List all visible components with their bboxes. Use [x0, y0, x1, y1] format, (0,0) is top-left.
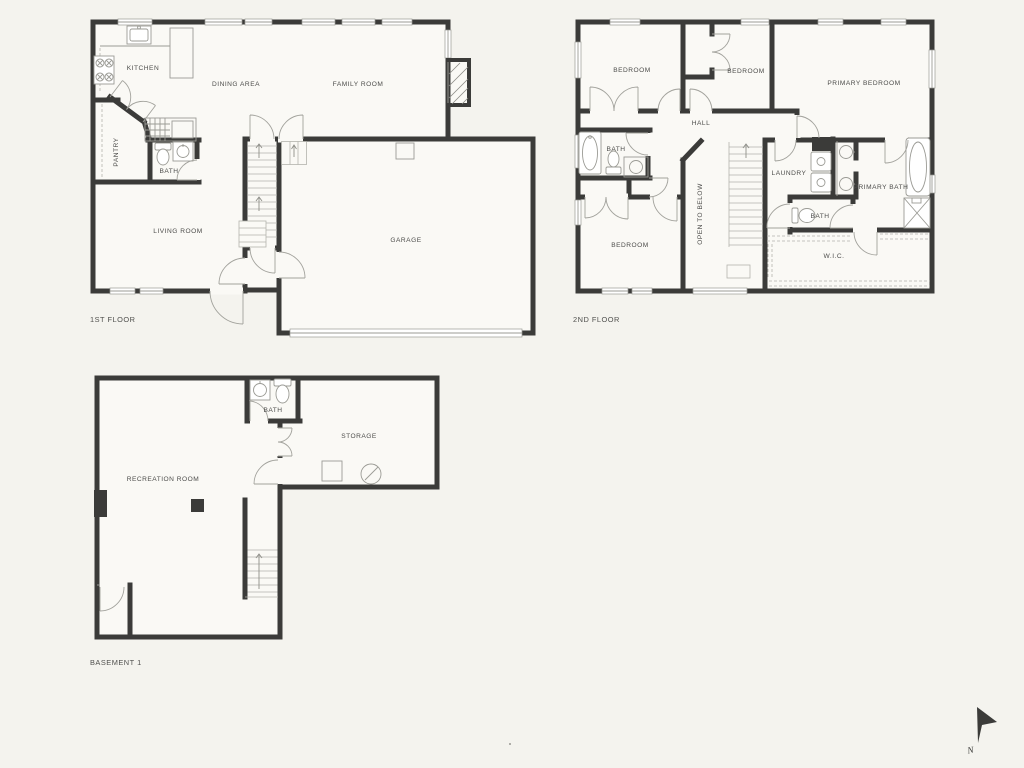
room-label-bath-basement: BATH	[263, 407, 282, 414]
room-label-open-to-below: OPEN TO BELOW	[697, 183, 704, 245]
room-label-storage: STORAGE	[341, 433, 377, 440]
floor-label-basement: BASEMENT 1	[90, 658, 142, 667]
room-label-bath-1f: BATH	[159, 168, 178, 175]
shower-icon	[904, 198, 930, 228]
room-label-pantry: PANTRY	[113, 137, 120, 166]
room-label-living-room: LIVING ROOM	[153, 228, 202, 235]
room-label-garage: GARAGE	[390, 237, 421, 244]
room-label-bedroom-1: BEDROOM	[613, 67, 651, 74]
first-floor-plan: KITCHEN DINING AREA FAMILY ROOM PANTRY B…	[90, 19, 533, 337]
basement-footprint	[97, 378, 437, 637]
basement-sink-icon	[250, 380, 270, 400]
floor-plan-svg: KITCHEN DINING AREA FAMILY ROOM PANTRY B…	[0, 0, 1024, 768]
floor-plan-canvas: KITCHEN DINING AREA FAMILY ROOM PANTRY B…	[0, 0, 1024, 768]
support-post	[191, 499, 204, 512]
compass-north-label: N	[966, 744, 976, 755]
first-floor-bath-sink-icon	[173, 142, 193, 161]
dryer-icon	[811, 173, 831, 192]
north-arrow: N	[966, 707, 997, 756]
room-label-primary-bath: PRIMARY BATH	[854, 184, 909, 191]
floor-label-2nd: 2ND FLOOR	[573, 315, 620, 324]
page-dot	[509, 743, 511, 745]
room-label-dining-area: DINING AREA	[212, 81, 260, 88]
room-label-recreation-room: RECREATION ROOM	[127, 476, 200, 483]
floor-label-1st: 1ST FLOOR	[90, 315, 135, 324]
second-floor-plan: BEDROOM BEDROOM PRIMARY BEDROOM HALL BAT…	[573, 19, 935, 324]
room-label-bath-small: BATH	[810, 213, 829, 220]
room-label-family-room: FAMILY ROOM	[333, 81, 384, 88]
room-label-hall: HALL	[692, 120, 711, 127]
primary-bath-tub-icon	[906, 138, 930, 196]
room-label-laundry: LAUNDRY	[772, 170, 807, 177]
kitchen-sink-icon	[127, 26, 151, 44]
room-label-bedroom-2: BEDROOM	[727, 68, 765, 75]
wall-niche	[94, 490, 107, 517]
room-label-kitchen: KITCHEN	[127, 65, 159, 72]
garage-door	[290, 329, 522, 337]
washer-icon	[811, 152, 831, 171]
north-arrow-icon	[977, 707, 997, 743]
second-floor-footprint	[578, 22, 932, 291]
second-floor-bathtub-icon	[579, 132, 601, 174]
room-label-bedroom-3: BEDROOM	[611, 242, 649, 249]
room-label-bath-2f: BATH	[606, 146, 625, 153]
room-label-primary-bedroom: PRIMARY BEDROOM	[827, 80, 900, 87]
chase-box	[812, 137, 833, 151]
room-label-wic: W.I.C.	[824, 253, 845, 260]
basement-plan: BATH STORAGE RECREATION ROOM BASEMENT 1	[90, 378, 437, 667]
stove-icon	[94, 56, 114, 84]
